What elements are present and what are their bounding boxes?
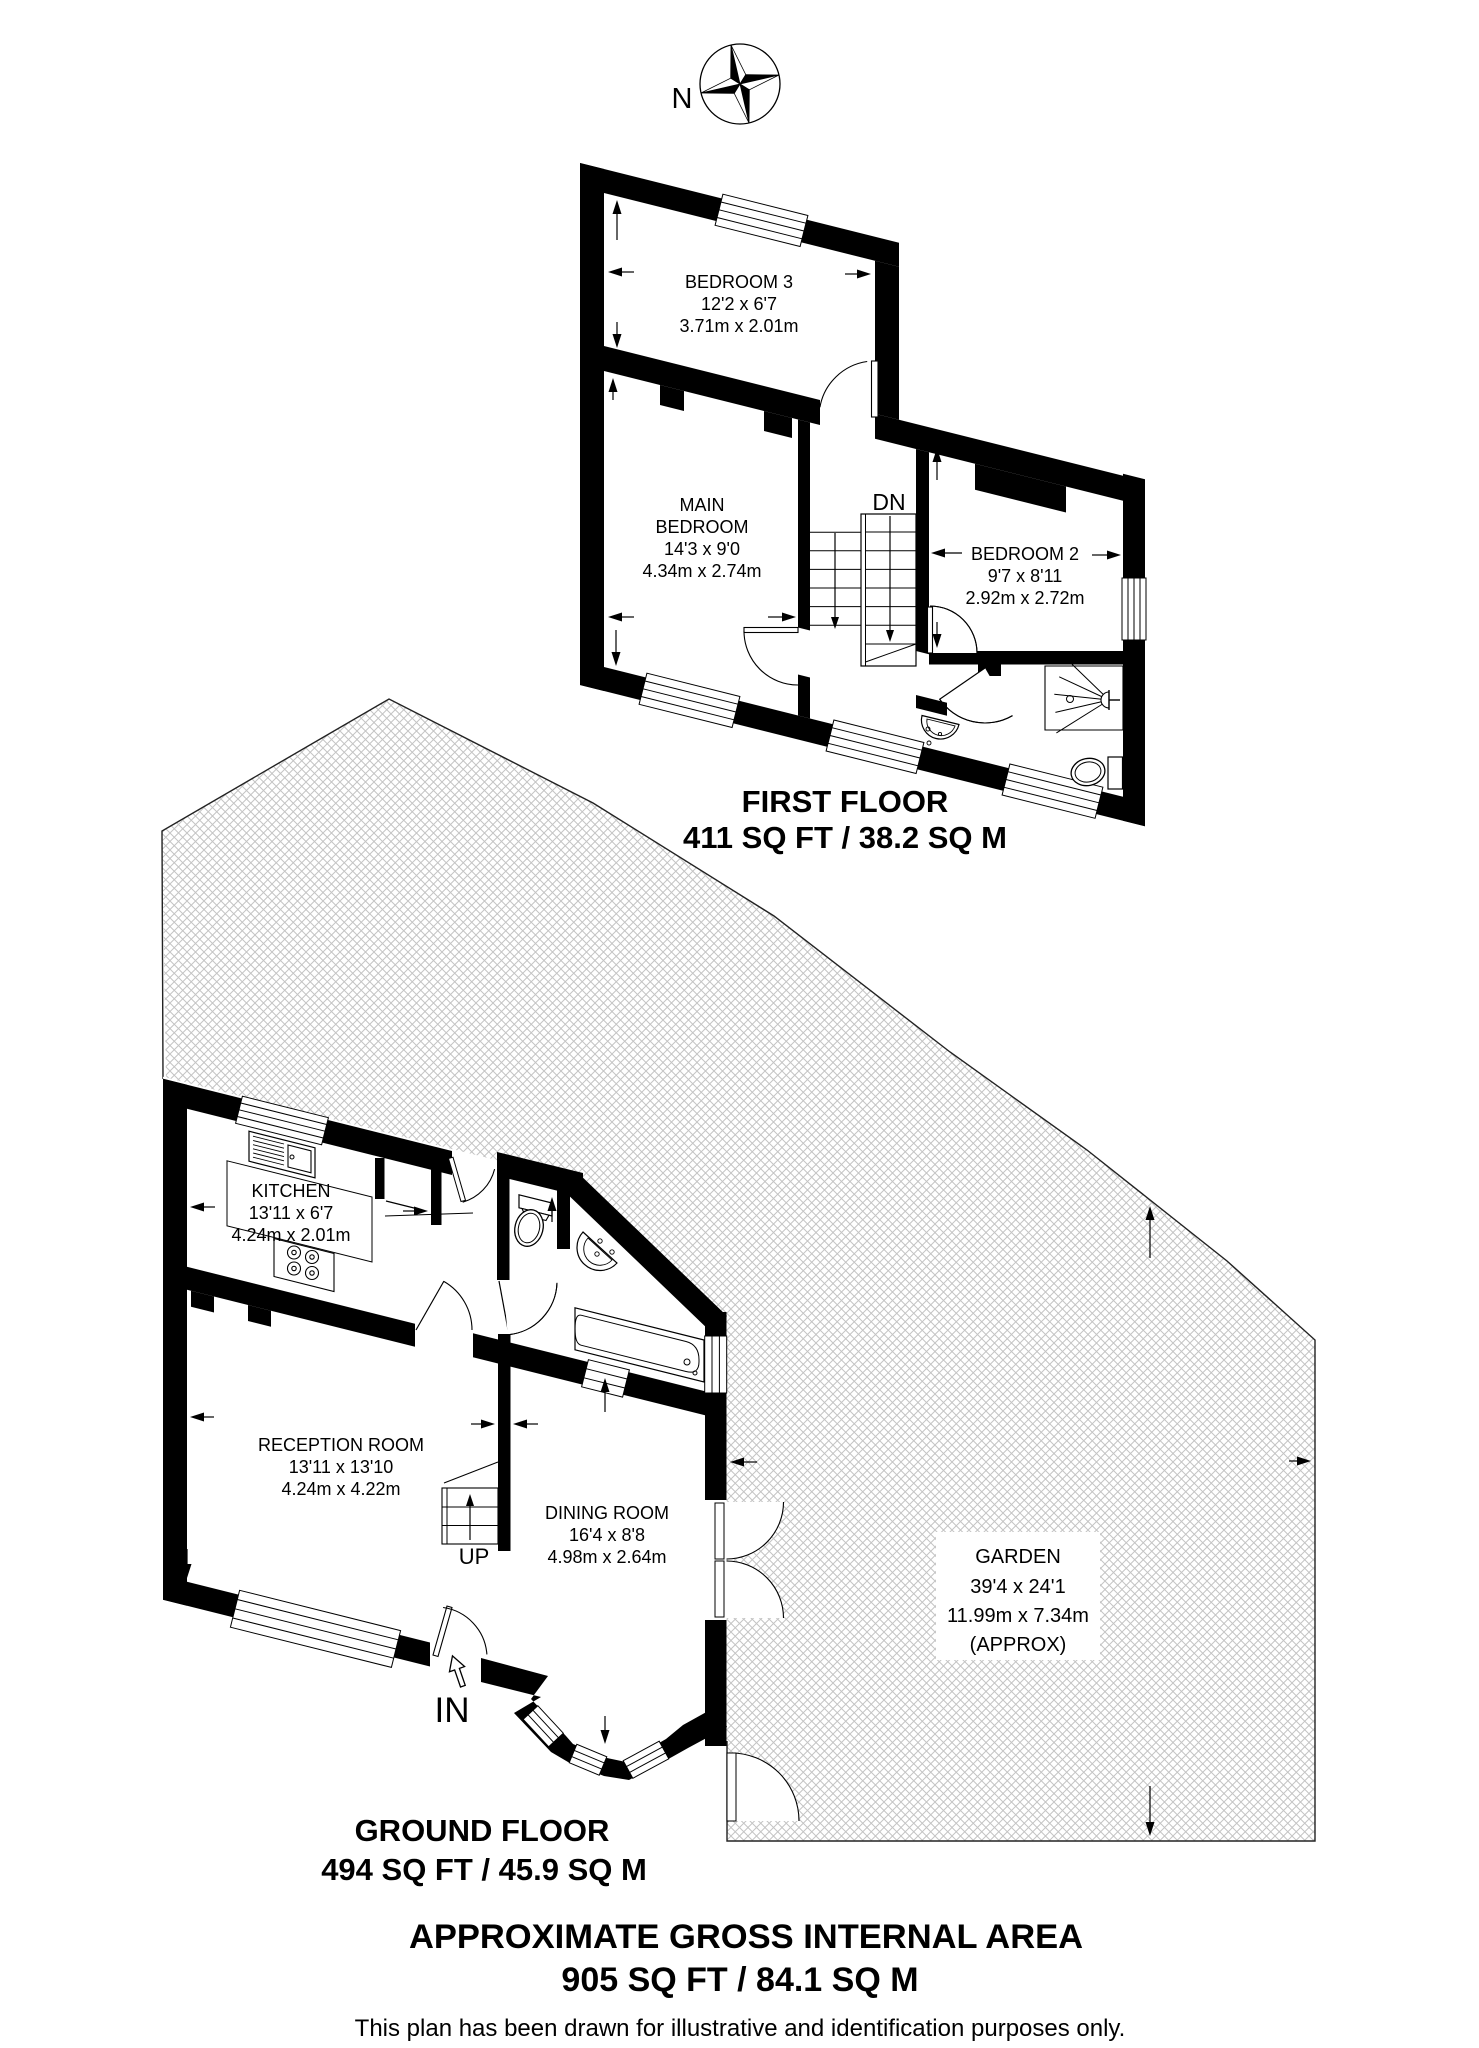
svg-text:905 SQ FT / 84.1 SQ M: 905 SQ FT / 84.1 SQ M xyxy=(561,1961,918,1999)
svg-text:13'11 x 6'7: 13'11 x 6'7 xyxy=(249,1203,334,1223)
svg-text:DN: DN xyxy=(872,489,905,515)
svg-text:39'4 x 24'1: 39'4 x 24'1 xyxy=(970,1576,1066,1598)
svg-text:RECEPTION ROOM: RECEPTION ROOM xyxy=(258,1435,424,1455)
svg-text:APPROXIMATE GROSS INTERNAL ARE: APPROXIMATE GROSS INTERNAL AREA xyxy=(409,1918,1083,1956)
svg-text:BEDROOM 3: BEDROOM 3 xyxy=(685,272,793,292)
svg-text:411 SQ FT / 38.2 SQ M: 411 SQ FT / 38.2 SQ M xyxy=(683,820,1007,855)
svg-text:4.24m x 2.01m: 4.24m x 2.01m xyxy=(231,1225,350,1245)
svg-text:11.99m x 7.34m: 11.99m x 7.34m xyxy=(947,1605,1089,1627)
svg-text:KITCHEN: KITCHEN xyxy=(251,1181,330,1201)
svg-text:BEDROOM: BEDROOM xyxy=(655,517,748,537)
svg-text:GARDEN: GARDEN xyxy=(975,1546,1061,1568)
svg-text:2.92m x 2.72m: 2.92m x 2.72m xyxy=(965,588,1084,608)
svg-text:MAIN: MAIN xyxy=(680,495,725,515)
svg-text:UP: UP xyxy=(459,1544,490,1569)
svg-text:DINING ROOM: DINING ROOM xyxy=(545,1503,669,1523)
svg-text:GROUND FLOOR: GROUND FLOOR xyxy=(355,1813,610,1848)
svg-text:16'4 x 8'8: 16'4 x 8'8 xyxy=(569,1525,645,1545)
svg-text:FIRST FLOOR: FIRST FLOOR xyxy=(742,784,949,819)
svg-text:N: N xyxy=(672,83,693,115)
svg-text:IN: IN xyxy=(435,1691,470,1730)
svg-text:(APPROX): (APPROX) xyxy=(970,1634,1067,1656)
svg-text:4.24m x 4.22m: 4.24m x 4.22m xyxy=(281,1479,400,1499)
svg-text:14'3 x 9'0: 14'3 x 9'0 xyxy=(664,539,740,559)
svg-text:3.71m x 2.01m: 3.71m x 2.01m xyxy=(679,316,798,336)
svg-text:12'2 x 6'7: 12'2 x 6'7 xyxy=(701,294,777,314)
svg-text:4.98m x 2.64m: 4.98m x 2.64m xyxy=(547,1547,666,1567)
svg-text:13'11 x 13'10: 13'11 x 13'10 xyxy=(289,1457,394,1477)
svg-text:This plan has been drawn for i: This plan has been drawn for illustrativ… xyxy=(355,2015,1126,2042)
svg-text:9'7 x 8'11: 9'7 x 8'11 xyxy=(988,566,1063,586)
svg-text:4.34m x 2.74m: 4.34m x 2.74m xyxy=(642,561,761,581)
svg-text:494 SQ FT / 45.9 SQ M: 494 SQ FT / 45.9 SQ M xyxy=(321,1852,647,1887)
svg-text:BEDROOM 2: BEDROOM 2 xyxy=(971,544,1079,564)
